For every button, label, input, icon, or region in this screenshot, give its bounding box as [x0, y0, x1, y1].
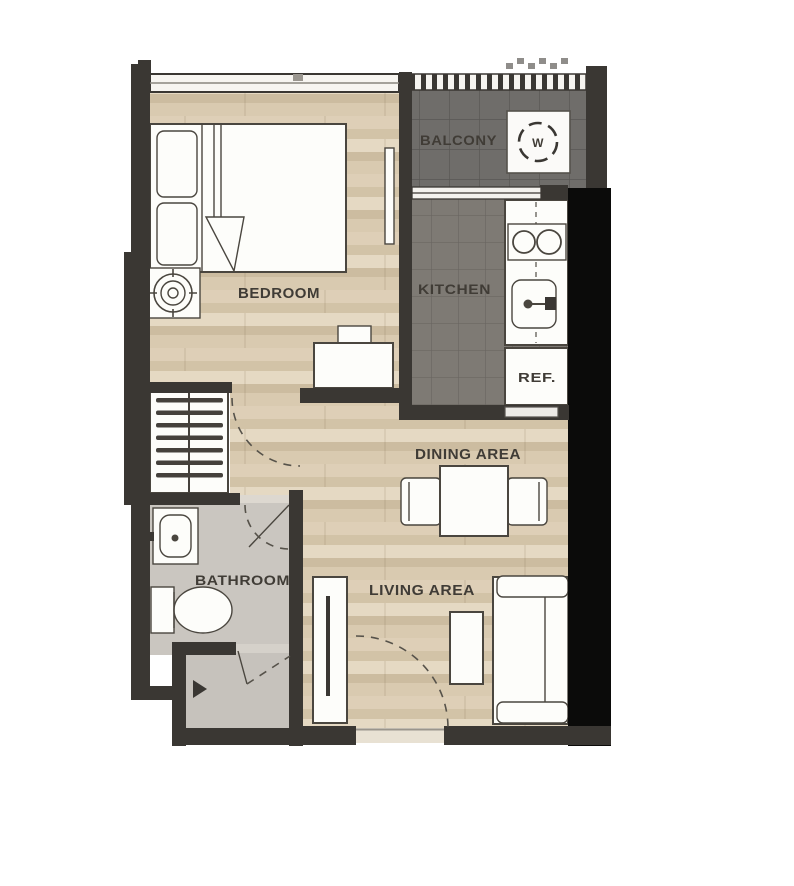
tv-console [313, 577, 347, 723]
balcony-railing [412, 74, 586, 90]
sofa-back [545, 582, 568, 719]
refrigerator-label: REF. [518, 370, 556, 385]
bottom-wall-west [172, 728, 303, 745]
kitchen-slide-panel [505, 407, 558, 417]
dining-chair-right [507, 478, 547, 525]
structural-black-wall [568, 188, 611, 746]
bathroom-living-wall [289, 490, 303, 746]
washer-label: W [532, 136, 544, 150]
basin-faucet-icon [512, 280, 556, 328]
toilet-icon [151, 587, 232, 633]
desk [314, 343, 393, 388]
coffee-table [450, 612, 483, 684]
bathroom-top-wall [124, 493, 240, 505]
refrigerator: REF. [505, 348, 568, 405]
bathroom-door-threshold [240, 495, 289, 503]
balcony-label: BALCONY [420, 133, 497, 148]
bedroom-bottom-wall [300, 388, 400, 403]
bathroom-label: BATHROOM [195, 573, 290, 588]
tv-screen [326, 596, 330, 696]
shower-door-threshold [236, 644, 289, 653]
vent-marks [506, 58, 568, 69]
bedside-table [146, 268, 200, 318]
window-mullion [293, 74, 303, 81]
bedroom-label: BEDROOM [238, 286, 320, 302]
living-area-label: LIVING AREA [369, 583, 475, 599]
dining-chair-left [401, 478, 441, 525]
hall-floor [230, 386, 305, 496]
sofa [493, 576, 568, 724]
left-wall-step [124, 252, 131, 498]
bed [150, 124, 346, 272]
bedroom-wardrobe-wall [148, 382, 232, 393]
shower-wall [186, 642, 236, 655]
floor-plan-drawing: W REF. [0, 0, 794, 886]
bedroom-balcony-wall [399, 72, 412, 420]
sofa-armrest [497, 702, 568, 723]
pillow [157, 203, 197, 265]
bottom-wall-east [444, 726, 611, 745]
dining-table [440, 466, 508, 536]
balcony-sliding-door [412, 187, 541, 199]
pillow [157, 131, 197, 197]
bathroom-sink [147, 508, 198, 564]
two-burner-icon [508, 224, 566, 260]
kitchen-label: KITCHEN [418, 282, 491, 297]
bottom-wall-center [300, 726, 356, 745]
floor-plan: W REF. [0, 0, 794, 886]
wardrobe [150, 390, 228, 493]
dining-area-label: DINING AREA [415, 447, 521, 463]
left-wall [131, 64, 150, 700]
bedroom-window [150, 74, 399, 92]
balcony-door-jamb [540, 185, 568, 200]
kitchen-counter [505, 200, 568, 345]
service-notch [150, 655, 172, 686]
bedroom-mirror [385, 148, 394, 244]
left-bottom-cap [131, 686, 186, 700]
washing-machine: W [507, 111, 570, 173]
sofa-armrest [497, 576, 568, 597]
balcony-right-wall [586, 66, 607, 190]
